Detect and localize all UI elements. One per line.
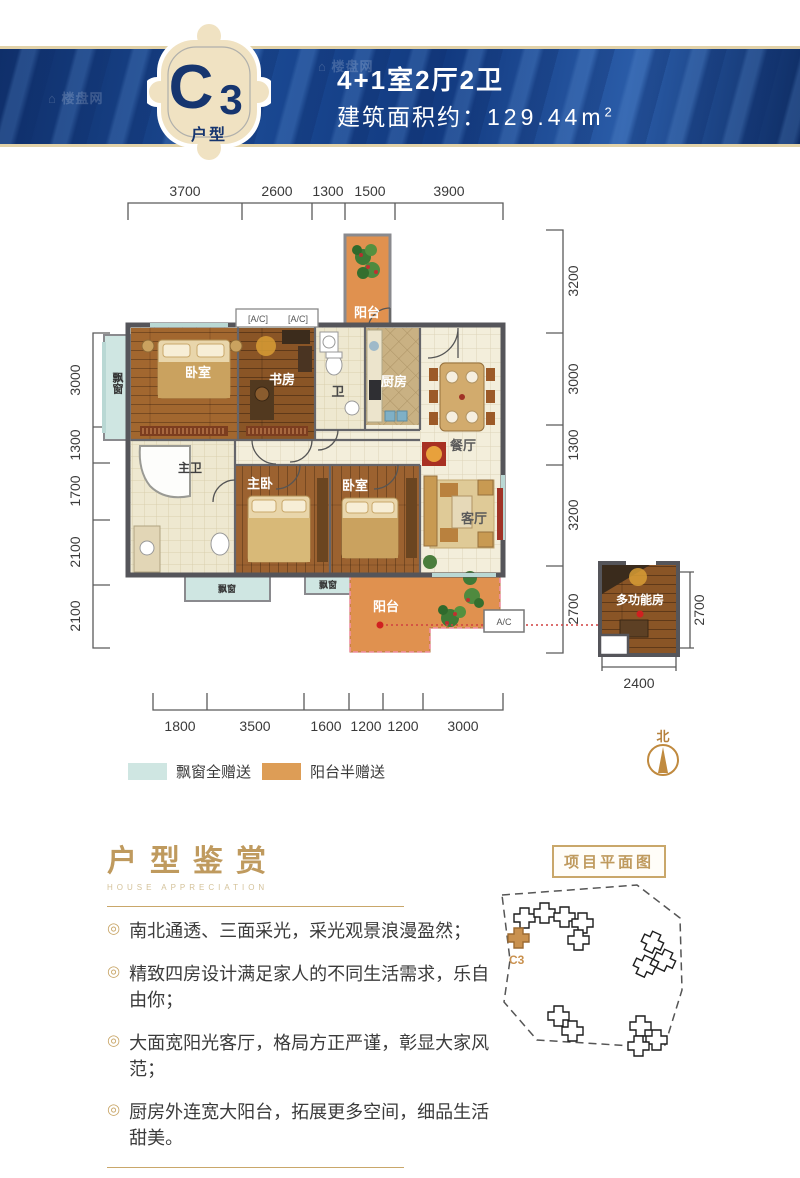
dim-top: 1300 xyxy=(312,183,343,199)
badge-code-main: C xyxy=(169,53,214,122)
room-label-dining: 餐厅 xyxy=(449,438,476,453)
dim-left: 1300 xyxy=(67,429,83,460)
room-label-study: 书房 xyxy=(269,372,295,387)
dim-top: 3900 xyxy=(433,183,464,199)
ac-unit-bottom: A/C xyxy=(484,610,524,632)
red-dot xyxy=(377,622,384,629)
ac-label: A/C xyxy=(496,617,512,627)
bullet-marker: ◎ xyxy=(107,1098,120,1122)
dim-right: 3200 xyxy=(565,265,581,296)
ac-label: [A/C] xyxy=(288,314,308,324)
list-item: ◎精致四房设计满足家人的不同生活需求，乐自由你； xyxy=(107,960,507,1012)
dim-bottom: 1800 xyxy=(164,718,195,734)
dim-bottom: 1600 xyxy=(310,718,341,734)
site-building-c3-highlight xyxy=(508,928,529,948)
plan-legend: 飘窗全赠送 阳台半赠送 xyxy=(128,763,385,781)
legend-label-bay: 飘窗全赠送 xyxy=(176,763,251,781)
north-needle xyxy=(658,747,668,773)
site-buildings xyxy=(514,903,678,1056)
legend-label-balcony: 阳台半赠送 xyxy=(310,764,385,781)
watermark: ⌂ 楼盘网 xyxy=(48,88,103,107)
room-label-bay-left: 飘窗 xyxy=(111,372,124,395)
appreciation-list: ◎南北通透、三面采光，采光观景浪漫盈然； ◎精致四房设计满足家人的不同生活需求，… xyxy=(107,917,507,1150)
dim-bottom: 1200 xyxy=(387,718,418,734)
room-label-kitchen: 厨房 xyxy=(381,374,407,389)
room-label-master-bedroom: 主卧 xyxy=(247,476,273,491)
dim-bottom: 1200 xyxy=(350,718,381,734)
multi-function-room: 多功能房 xyxy=(600,563,678,655)
bullet-marker: ◎ xyxy=(107,960,120,984)
entry-notch xyxy=(600,635,628,655)
dim-top: 2600 xyxy=(261,183,292,199)
dim-right: 3200 xyxy=(565,499,581,530)
dim-right: 2700 xyxy=(565,593,581,624)
room-label-living: 客厅 xyxy=(461,511,487,526)
bullet-marker: ◎ xyxy=(107,917,120,941)
ac-unit-top: [A/C] [A/C] xyxy=(236,309,318,327)
bullet-marker: ◎ xyxy=(107,1029,120,1053)
list-item: ◎大面宽阳光客厅，格局方正严谨，彰显大家风范； xyxy=(107,1029,507,1081)
dim-left: 3000 xyxy=(67,364,83,395)
dim-left: 2100 xyxy=(67,536,83,567)
dim-annex-right: 2700 xyxy=(691,594,707,625)
lamp-glow xyxy=(629,568,647,586)
badge-label: 户型 xyxy=(191,125,227,144)
siteplan-title: 项目平面图 xyxy=(552,845,666,878)
dim-right: 3000 xyxy=(565,363,581,394)
dim-left: 1700 xyxy=(67,475,83,506)
north-arrow: 北 xyxy=(648,729,678,775)
room-label-multi: 多功能房 xyxy=(616,592,664,607)
dim-top: 3700 xyxy=(169,183,200,199)
dim-bottom: 3500 xyxy=(239,718,270,734)
ac-label: [A/C] xyxy=(248,314,268,324)
bullet-text: 大面宽阳光客厅，格局方正严谨，彰显大家风范； xyxy=(129,1029,507,1081)
room-label-balcony-bottom: 阳台 xyxy=(373,599,399,614)
appreciation-section: 户型鉴赏 HOUSE APPRECIATION ◎南北通透、三面采光，采光观景浪… xyxy=(107,836,507,1178)
badge-code-sub: 3 xyxy=(219,76,242,123)
appreciation-subtitle: HOUSE APPRECIATION xyxy=(107,883,507,892)
unit-badge: C 3 户型 xyxy=(147,22,271,164)
room-label-balcony-top: 阳台 xyxy=(354,305,380,320)
room-label-master-bath: 主卫 xyxy=(178,460,202,475)
dim-annex-bottom: 2400 xyxy=(623,675,654,691)
legend-swatch-balcony xyxy=(262,763,301,780)
divider xyxy=(107,906,404,907)
room-label-bath: 卫 xyxy=(331,384,344,399)
dim-top: 1500 xyxy=(354,183,385,199)
floorplan: ⌂ 楼盘网 ⌂ 楼盘网 3700 2600 1300 1500 3900 300… xyxy=(0,180,800,810)
dim-bottom: 3000 xyxy=(447,718,478,734)
legend-swatch-bay xyxy=(128,763,167,780)
balcony-top: 阳台 xyxy=(345,235,390,330)
bullet-text: 南北通透、三面采光，采光观景浪漫盈然； xyxy=(129,917,471,943)
room-label-bedroom-bottom: 卧室 xyxy=(342,478,368,493)
room-label-bedroom-top: 卧室 xyxy=(185,365,211,380)
room-label-bay-b1: 飘窗 xyxy=(218,583,236,594)
site-unit-label: C3 xyxy=(509,953,525,967)
unit-area-text: 建筑面积约：129.44m2 xyxy=(337,98,614,132)
siteplan-map: C3 xyxy=(492,880,697,1075)
bullet-text: 精致四房设计满足家人的不同生活需求，乐自由你； xyxy=(129,960,507,1012)
dim-right: 1300 xyxy=(565,429,581,460)
red-dot xyxy=(637,611,644,618)
unit-layout-title: 4+1室2厅2卫 xyxy=(337,60,504,97)
north-label: 北 xyxy=(656,729,669,744)
divider xyxy=(107,1167,404,1168)
dim-left: 2100 xyxy=(67,600,83,631)
balcony-bottom: 阳台 xyxy=(350,571,598,652)
list-item: ◎南北通透、三面采光，采光观景浪漫盈然； xyxy=(107,917,507,943)
room-label-bay-b2: 飘窗 xyxy=(319,579,337,590)
appreciation-title: 户型鉴赏 xyxy=(107,836,507,880)
